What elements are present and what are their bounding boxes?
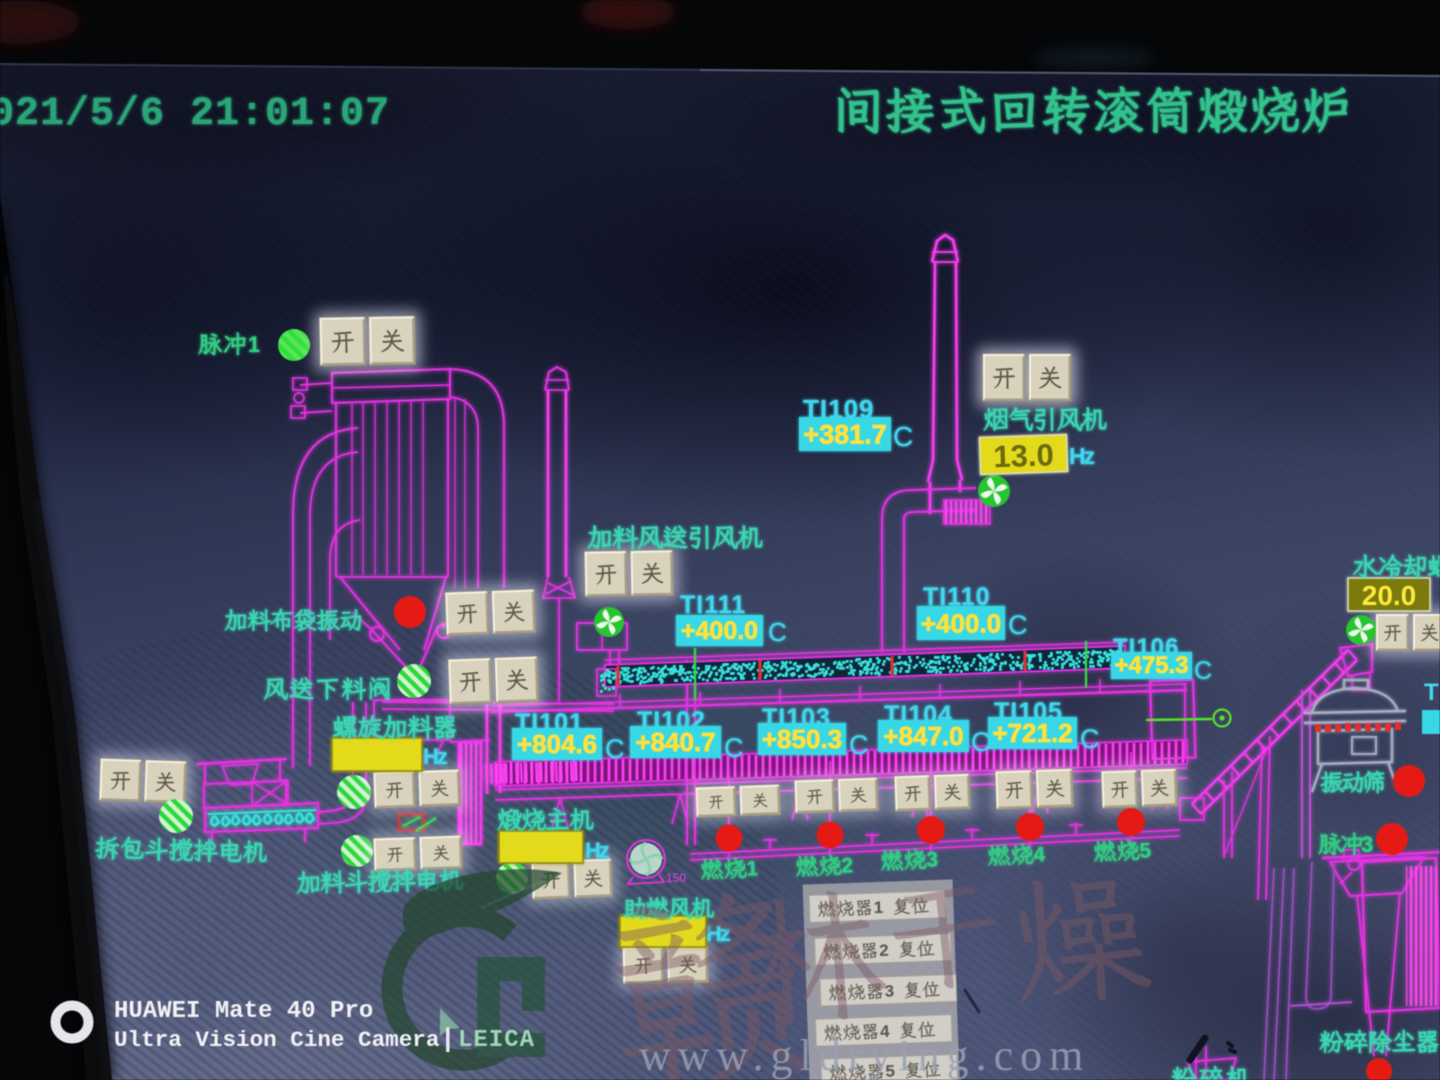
svg-text:13.0: 13.0	[993, 437, 1055, 474]
svg-text:C: C	[971, 727, 991, 757]
svg-text:HUAWEI Mate 40 Pro: HUAWEI Mate 40 Pro	[114, 998, 373, 1025]
svg-text:www.gldrying.com: www.gldrying.com	[639, 1031, 1090, 1080]
svg-text:4: 4	[1033, 843, 1046, 866]
svg-text:1: 1	[248, 332, 260, 357]
svg-text:C: C	[605, 734, 625, 764]
svg-text:3: 3	[1361, 832, 1373, 857]
svg-text:C: C	[1080, 724, 1100, 754]
svg-text:150: 150	[666, 871, 686, 885]
svg-text:1: 1	[873, 898, 883, 917]
svg-text:LEICA: LEICA	[458, 1027, 535, 1054]
svg-text:z: z	[1084, 443, 1096, 469]
svg-text:TI: TI	[1424, 679, 1440, 706]
svg-text:5: 5	[1139, 839, 1152, 862]
svg-text:3: 3	[926, 848, 938, 871]
svg-text:+400.0: +400.0	[921, 609, 1001, 639]
svg-text:+850.3: +850.3	[762, 724, 842, 754]
svg-text:C: C	[1008, 610, 1028, 640]
svg-text:20.0: 20.0	[1362, 580, 1417, 611]
svg-text:1: 1	[746, 857, 759, 880]
svg-text:+840.7: +840.7	[635, 727, 715, 757]
svg-text:+804.6: +804.6	[517, 729, 597, 759]
svg-text:+381.7: +381.7	[803, 420, 886, 450]
svg-text:+475.3: +475.3	[1114, 652, 1188, 679]
svg-text:Ultra Vision Cine Camera: Ultra Vision Cine Camera	[114, 1027, 439, 1053]
svg-text:z: z	[599, 838, 610, 863]
svg-text:C: C	[1194, 657, 1212, 685]
svg-text:2: 2	[879, 941, 889, 960]
svg-text:C: C	[724, 733, 744, 763]
svg-text:C: C	[768, 617, 787, 647]
svg-text:|: |	[440, 1024, 456, 1054]
svg-text:+721.2: +721.2	[992, 718, 1072, 748]
svg-text:+847.0: +847.0	[883, 721, 963, 751]
svg-text:TI111: TI111	[680, 591, 746, 619]
svg-text:C: C	[893, 421, 913, 452]
svg-text:z: z	[437, 744, 448, 769]
svg-text:021/5/6 21:01:07: 021/5/6 21:01:07	[0, 92, 390, 137]
svg-text:2: 2	[841, 854, 853, 877]
svg-text:+400.0: +400.0	[681, 617, 758, 645]
svg-text:C: C	[849, 730, 869, 760]
